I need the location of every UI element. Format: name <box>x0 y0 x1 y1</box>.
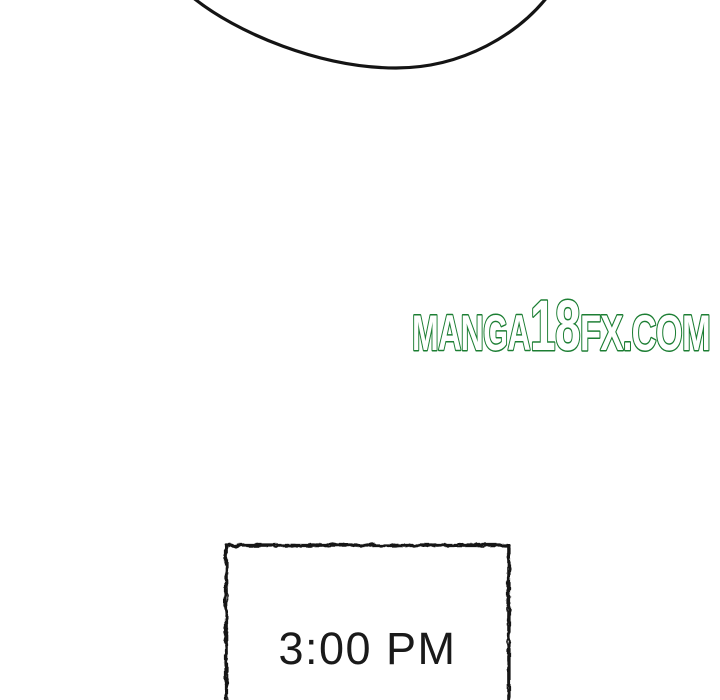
watermark: MANGA 18 FX.COM <box>408 294 714 358</box>
time-label: 3:00 PM <box>225 626 510 671</box>
watermark-suffix-text: FX.COM <box>580 305 710 358</box>
manga-page: MANGA 18 FX.COM 3:00 PM <box>0 0 720 700</box>
watermark-prefix-text: MANGA <box>412 305 530 358</box>
watermark-number-text: 18 <box>530 294 580 358</box>
time-panel <box>0 530 720 700</box>
speech-bubble-curve <box>0 0 720 90</box>
speech-bubble-curve-path <box>191 0 548 68</box>
